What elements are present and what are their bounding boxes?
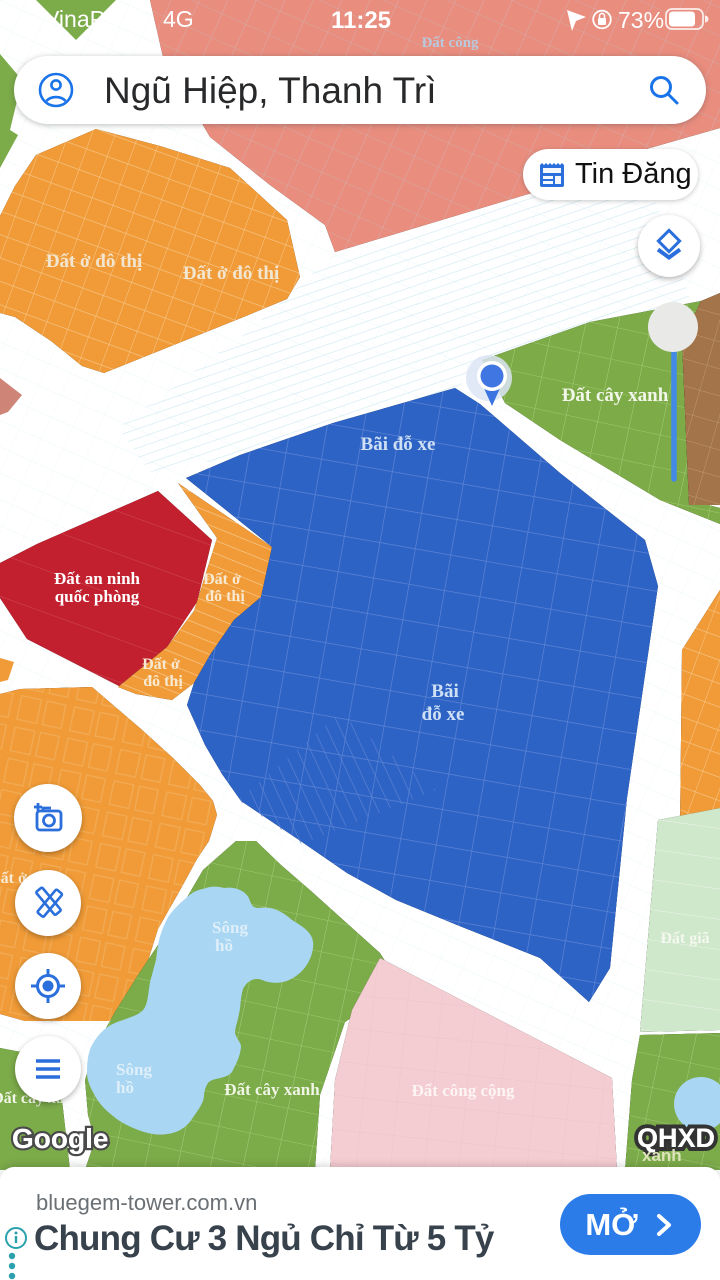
svg-text:Đất ở: Đất ở — [203, 571, 241, 588]
svg-text:4G: 4G — [163, 6, 194, 32]
svg-text:Đất công: Đất công — [421, 35, 479, 51]
svg-text:11:25: 11:25 — [331, 7, 391, 34]
svg-text:VinaPh: VinaPh — [44, 6, 118, 32]
svg-text:Đất cây xanh: Đất cây xanh — [224, 1080, 320, 1099]
svg-text:Đất công cộng: Đất công cộng — [412, 1081, 515, 1100]
svg-text:Đất cây xanh: Đất cây xanh — [562, 385, 669, 406]
svg-text:Đất giã: Đất giã — [660, 930, 709, 947]
svg-text:Đất ở đô thị: Đất ở đô thị — [183, 263, 280, 284]
svg-text:hồ: hồ — [215, 936, 233, 955]
svg-text:73%: 73% — [618, 7, 664, 33]
svg-text:Đất ở đô thị: Đất ở đô thị — [46, 251, 143, 272]
svg-text:đô thị: đô thị — [205, 588, 245, 605]
svg-text:Bãi đỗ xe: Bãi đỗ xe — [361, 434, 436, 455]
svg-text:hồ: hồ — [116, 1078, 134, 1097]
svg-text:Đất ở: Đất ở — [142, 656, 180, 673]
svg-text:quốc phòng: quốc phòng — [55, 587, 140, 606]
svg-text:Sông: Sông — [116, 1060, 152, 1079]
svg-text:Bãi: Bãi — [431, 681, 458, 702]
svg-text:đỗ xe: đỗ xe — [422, 704, 465, 725]
svg-text:Sông: Sông — [212, 918, 248, 937]
svg-text:Đất an ninh: Đất an ninh — [54, 569, 141, 588]
svg-text:đô thị: đô thị — [143, 673, 183, 690]
